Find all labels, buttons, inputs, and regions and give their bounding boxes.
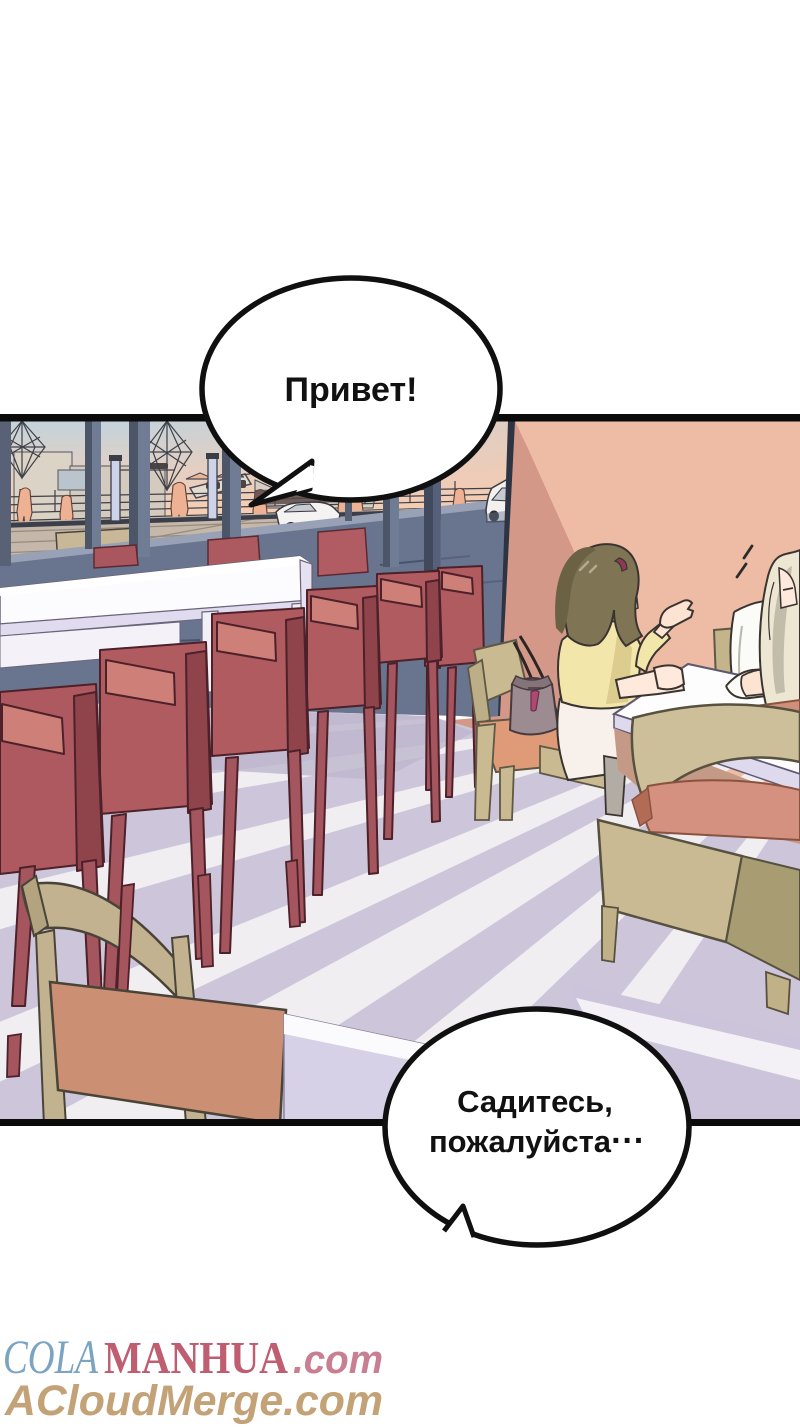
svg-text:пожалуйста···: пожалуйста··· xyxy=(429,1122,645,1160)
svg-text:.com: .com xyxy=(293,1338,383,1382)
svg-text:ACloudMerge.com: ACloudMerge.com xyxy=(4,1377,383,1425)
svg-text:Привет!: Привет! xyxy=(285,371,418,409)
svg-text:Садитесь,: Садитесь, xyxy=(457,1084,613,1119)
svg-text:MANHUA: MANHUA xyxy=(104,1332,288,1383)
